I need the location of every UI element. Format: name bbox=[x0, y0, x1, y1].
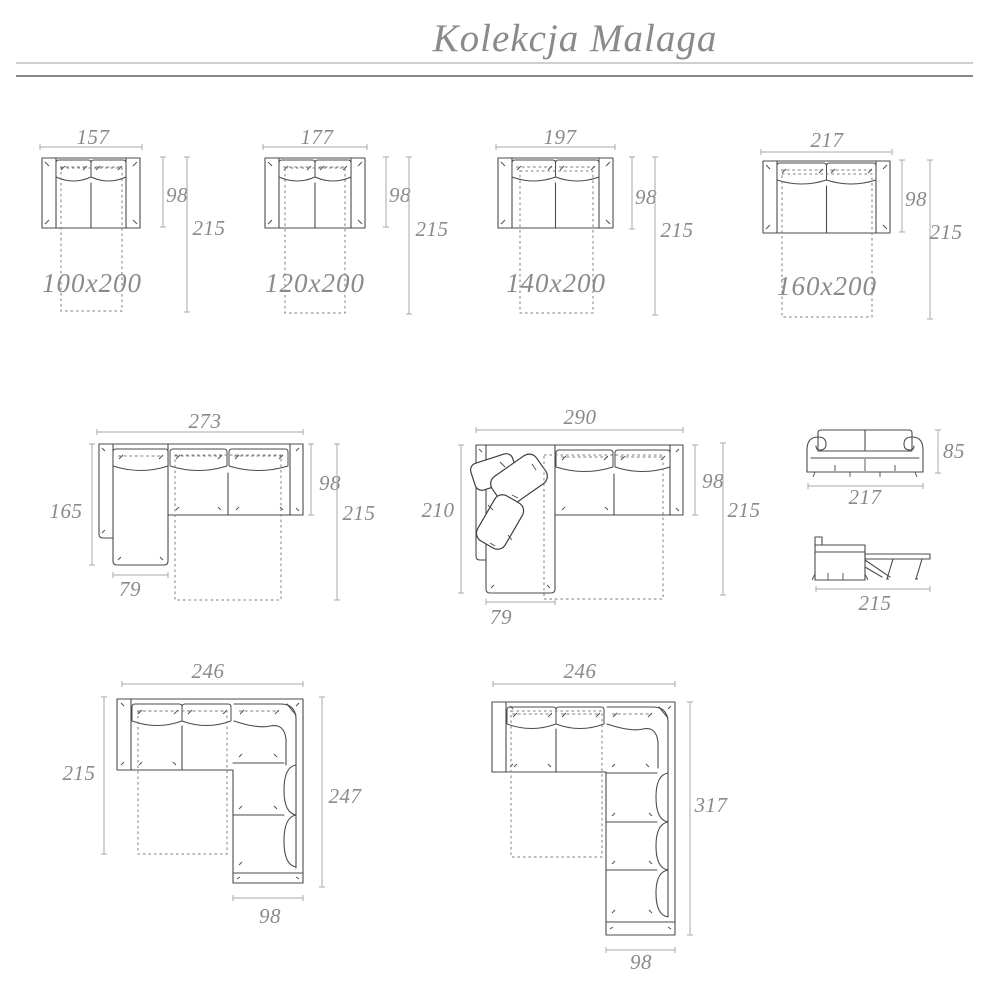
leg-length-dim-label: 317 bbox=[694, 793, 729, 817]
side-dim-label: 165 bbox=[50, 499, 83, 523]
length-dim-label: 215 bbox=[859, 591, 892, 615]
width-dim-label: 217 bbox=[849, 485, 883, 509]
catalog-page: Kolekcja Malaga 157 100x200 98 215 bbox=[0, 0, 1000, 1000]
chaise-dim-label: 79 bbox=[490, 605, 512, 629]
diagram-l-sofa-317: 246 317 98 bbox=[450, 655, 765, 995]
bed-size-label: 160x200 bbox=[777, 271, 877, 301]
length-dim-label: 215 bbox=[661, 218, 694, 242]
leg-length-dim bbox=[687, 702, 693, 935]
sofa-outline bbox=[469, 445, 683, 593]
sofa-outline bbox=[492, 702, 675, 935]
diagram-sofa-177: 177 120x200 98 215 bbox=[253, 125, 468, 330]
divider-line-dark bbox=[16, 75, 973, 77]
diagram-corner-273: 273 165 79 98 bbox=[40, 405, 385, 630]
diagram-sofa-197: 197 140x200 98 215 bbox=[468, 125, 698, 330]
bed-size-label: 100x200 bbox=[42, 268, 142, 298]
sofa-outline bbox=[117, 699, 303, 883]
width-dim-label: 290 bbox=[564, 405, 597, 429]
length-dim-label: 215 bbox=[343, 501, 376, 525]
length-dim bbox=[652, 157, 658, 315]
side-dim bbox=[89, 444, 95, 565]
leg-width-dim-label: 98 bbox=[630, 950, 652, 974]
leg-length-dim bbox=[319, 697, 325, 887]
divider-line-light bbox=[16, 62, 973, 64]
leg-width-dim bbox=[233, 895, 303, 901]
length-dim bbox=[406, 157, 412, 314]
length-dim-label: 215 bbox=[193, 216, 226, 240]
depth-dim-label: 98 bbox=[166, 183, 188, 207]
sofa-outline bbox=[763, 161, 890, 233]
height-dim bbox=[935, 430, 941, 473]
width-dim-label: 217 bbox=[811, 128, 845, 152]
width-dim-label: 177 bbox=[301, 125, 335, 149]
length-dim bbox=[334, 444, 340, 600]
diagram-l-sofa-247: 246 215 247 bbox=[55, 655, 390, 945]
depth-dim-label: 98 bbox=[905, 187, 927, 211]
width-dim-label: 273 bbox=[189, 409, 222, 433]
width-dim-label: 246 bbox=[564, 659, 597, 683]
height-dim-label: 85 bbox=[943, 439, 965, 463]
depth-dim bbox=[308, 444, 314, 515]
chaise-dim-label: 79 bbox=[119, 577, 141, 601]
length-dim bbox=[720, 443, 726, 595]
bed-dashed-outline bbox=[544, 455, 663, 599]
side-dim bbox=[101, 697, 107, 854]
side-dim bbox=[458, 445, 464, 593]
side-dim-label: 210 bbox=[422, 498, 455, 522]
width-dim-label: 246 bbox=[192, 659, 225, 683]
leg-width-dim-label: 98 bbox=[259, 904, 281, 928]
length-dim-label: 215 bbox=[728, 498, 761, 522]
depth-dim-label: 98 bbox=[702, 469, 724, 493]
width-dim-label: 197 bbox=[544, 125, 578, 149]
page-title: Kolekcja Malaga bbox=[433, 16, 718, 61]
diagram-bed-side-view: 215 bbox=[795, 530, 975, 620]
depth-dim bbox=[692, 445, 698, 515]
bed-size-label: 140x200 bbox=[506, 268, 606, 298]
sofa-outline bbox=[498, 158, 613, 228]
depth-dim-label: 98 bbox=[635, 185, 657, 209]
length-dim-label: 215 bbox=[930, 220, 963, 244]
bed-outline bbox=[812, 537, 930, 580]
diagram-front-view: 85 217 bbox=[795, 420, 975, 520]
sofa-front-outline bbox=[807, 430, 923, 477]
side-dim-label: 215 bbox=[63, 761, 96, 785]
length-dim bbox=[184, 157, 190, 312]
diagram-corner-290: 290 210 bbox=[420, 400, 765, 640]
depth-dim-label: 98 bbox=[319, 471, 341, 495]
depth-dim-label: 98 bbox=[389, 183, 411, 207]
sofa-outline bbox=[99, 444, 303, 565]
diagram-sofa-157: 157 100x200 98 215 bbox=[30, 125, 235, 330]
length-dim-label: 215 bbox=[416, 217, 449, 241]
width-dim-label: 157 bbox=[77, 125, 111, 149]
diagram-sofa-217: 217 160x200 98 215 bbox=[730, 125, 970, 335]
bed-size-label: 120x200 bbox=[265, 268, 365, 298]
decorative-pillows bbox=[469, 451, 551, 553]
leg-length-dim-label: 247 bbox=[329, 784, 363, 808]
